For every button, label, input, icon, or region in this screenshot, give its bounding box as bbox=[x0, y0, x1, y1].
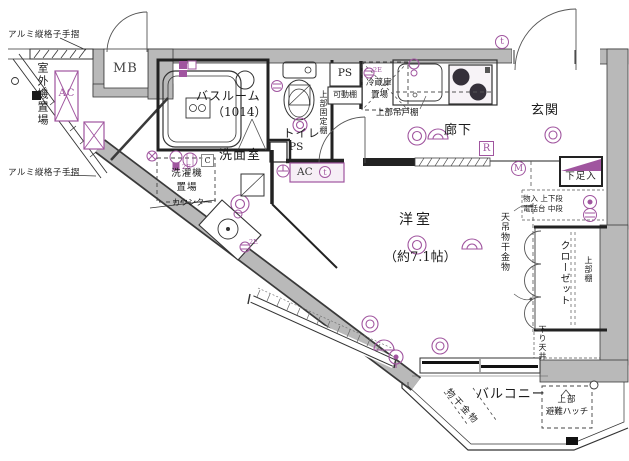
lowered-ceiling-label: 下り天井 bbox=[538, 325, 546, 361]
upper-shelf-label: 上部棚 bbox=[584, 256, 592, 283]
meter-box-label: MB bbox=[113, 62, 138, 75]
upper-fixed-shelf-label: 上部固定棚 bbox=[319, 90, 327, 135]
washroom-label: 洗面室 bbox=[219, 149, 261, 162]
western-room-size-label: （約7.1帖） bbox=[384, 251, 457, 264]
wall-ac-label: AC bbox=[297, 167, 313, 178]
bath-light bbox=[236, 71, 254, 89]
ceiling-laundry-label: 天吊物干金物 bbox=[499, 212, 508, 272]
ps-toilet-label: PS bbox=[289, 142, 303, 153]
bath-folding-door bbox=[238, 119, 266, 150]
hatch-label1: 上部 bbox=[544, 396, 590, 405]
outlet-2e-washer: 2E bbox=[182, 164, 191, 171]
closet-label: クローゼット bbox=[558, 240, 568, 306]
counter-label: カウンター bbox=[172, 199, 212, 207]
doorway-wall bbox=[363, 158, 415, 166]
corridor-light bbox=[408, 127, 448, 145]
refrigerator-mark: R bbox=[479, 141, 494, 156]
wall-outlet bbox=[277, 165, 289, 177]
balcony-mark bbox=[590, 381, 598, 389]
handrail-bottom-label: アルミ縦格子手摺 bbox=[8, 169, 80, 178]
vanity-mirror bbox=[241, 174, 264, 196]
outlet-2e-vanity: 2E bbox=[249, 239, 258, 246]
bathroom-label: バスルーム bbox=[196, 90, 261, 102]
entrance-label: 玄関 bbox=[531, 104, 559, 117]
storage-shelf-label: 物入 上下段 bbox=[523, 195, 563, 203]
washer-space-label2: 置場 bbox=[164, 183, 210, 193]
movable-shelf-label: 可動棚 bbox=[328, 91, 362, 99]
entry-sill bbox=[415, 158, 490, 166]
entrance-opening bbox=[512, 47, 600, 65]
outdoor-ac-label: AC bbox=[56, 89, 78, 99]
corridor-label: 廊下 bbox=[444, 124, 472, 137]
entrance-light bbox=[545, 127, 561, 143]
thermostat-mark-ac: t bbox=[319, 166, 331, 178]
drain-mark bbox=[12, 78, 19, 85]
ps-kitchen-label: PS bbox=[330, 68, 360, 79]
bathroom-size-label: （1014） bbox=[212, 106, 267, 118]
outlet-2e-kitchen: 2E bbox=[373, 67, 382, 74]
shoe-box-label: 下足入 bbox=[562, 172, 600, 182]
diagonal-window bbox=[248, 288, 396, 368]
outdoor-unit-label: 室外機置場 bbox=[37, 62, 48, 127]
c-box-mark: C bbox=[201, 154, 214, 167]
hatch-label2: 避難ハッチ bbox=[540, 408, 594, 417]
floor-plan: アルミ縦格子手摺 アルミ縦格子手摺 MB 室外機置場 AC バスルーム （101… bbox=[0, 0, 629, 461]
fridge-label1: 冷蔵庫 bbox=[366, 79, 392, 88]
balcony-sliding-door bbox=[412, 358, 548, 376]
upper-cupboard-label: 上部吊戸棚 bbox=[376, 109, 419, 118]
balcony-label: バルコニー bbox=[476, 388, 546, 401]
western-room-label: 洋室 bbox=[399, 213, 433, 227]
handrail-top-label: アルミ縦格子手摺 bbox=[8, 31, 80, 40]
fridge-label2: 置場 bbox=[371, 91, 388, 100]
phone-stand-label: 電話台 中段 bbox=[523, 205, 563, 213]
bath-counter-niche bbox=[179, 61, 196, 77]
diagonal-wall bbox=[100, 98, 416, 384]
toilet-fixture bbox=[283, 62, 316, 120]
stove bbox=[449, 65, 492, 104]
toilet-outlet bbox=[272, 81, 283, 92]
toilet-label: トイレ bbox=[283, 128, 321, 140]
mb-door bbox=[107, 12, 147, 52]
thermostat-mark-top: t bbox=[495, 35, 509, 49]
storage-outlets bbox=[584, 196, 597, 222]
meter-mark: M bbox=[511, 161, 526, 176]
balcony-drain bbox=[566, 437, 578, 445]
